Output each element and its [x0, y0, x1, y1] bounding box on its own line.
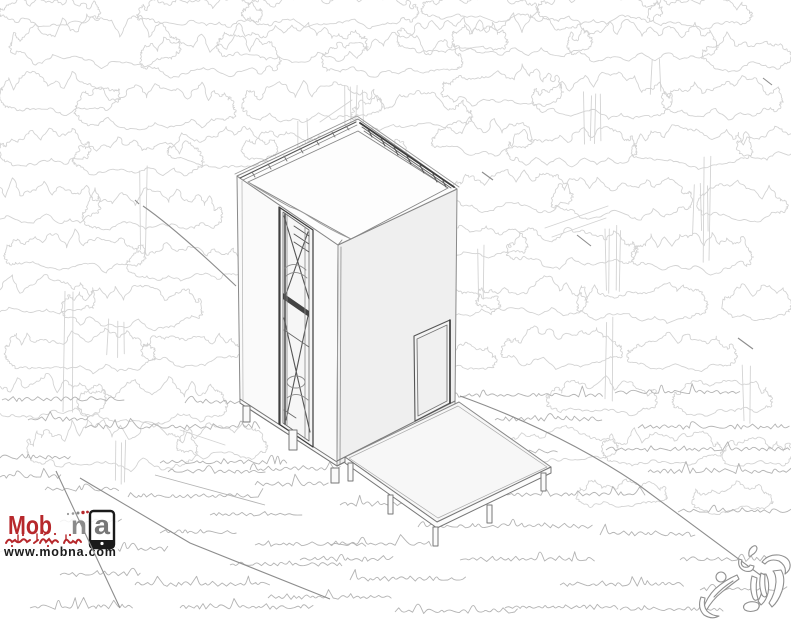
svg-text:a: a [94, 510, 111, 540]
svg-text:www.mobna.com: www.mobna.com [3, 545, 117, 559]
svg-text:Mob: Mob [8, 510, 52, 540]
